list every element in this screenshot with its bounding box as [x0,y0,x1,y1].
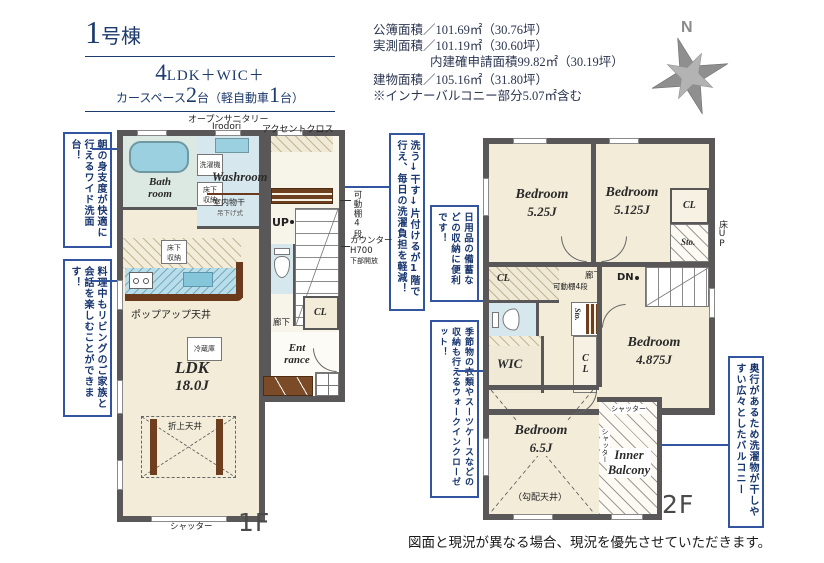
bedroom2-label: Bedroom 5.125J [595,184,669,218]
callout-laundry: 洗う↓干す↓片付けるが1階で行え、毎日の洗濯負担を軽減！ [389,133,425,311]
accent-wall-area [271,136,333,152]
area-line-kenkaku: 内建確申請面積99.82㎡（30.19坪） [373,54,624,70]
floor-up-label: 床UP [716,220,729,249]
wall-bath-bottom [123,207,197,210]
window [483,438,489,476]
porch [315,372,339,396]
toilet-room-1f [271,244,293,294]
burner-icon [133,278,139,284]
callout-balcony: 奥行があるため洗濯物が干しやすい広々としたバルコニー [728,356,764,528]
stairs-diagonal-2f [646,268,708,306]
storage-2f-topright: Sto. [670,224,709,262]
wall-toilet-stairs [293,244,295,326]
dn-label: DN [617,272,634,283]
window [117,460,123,490]
bathroom-label: Bathroom [131,176,189,200]
bedroom3-label: Bedroom 4.875J [609,334,699,368]
bedroom4-label: Bedroom 6.5J [495,422,587,456]
closet-1f: CL [303,296,339,330]
closet-2f-topright: CL [670,188,709,224]
bedroom1-label: Bedroom 5.25J [497,186,587,220]
stove [129,272,153,289]
wall-toilet-right [536,303,539,336]
vanity-counter [215,138,249,153]
area-figures: 公簿面積／101.69㎡（30.76坪） 実測面積／101.19㎡（30.60坪… [373,22,624,104]
window [513,514,553,520]
movable-shelf-band [271,188,333,204]
coffered-ceiling-box: 折上天井 [141,416,236,478]
movable-shelf-label-1f: 可動棚4段 [351,190,363,239]
wic-hatch [489,336,541,346]
window [137,130,167,136]
kitchen-sink [183,272,213,287]
area-line-jissoku: 実測面積／101.19㎡（30.60坪） [373,38,624,54]
movable-shelf-label-2f: 可動棚4段 [553,281,588,292]
ceiling-beam [150,419,157,475]
floor2-plan: Bedroom 5.25J Bedroom 5.125J CL Sto. CL … [483,138,715,520]
ceiling-beam [216,419,223,475]
toilet-tank-2f [492,312,499,328]
underfloor-storage-2: 床下収納 [161,240,187,264]
wall-washroom-bottom [197,226,265,229]
coffered-ceiling-label: 折上天井 [166,420,204,432]
spec-car-prefix: カースペース [116,91,186,105]
compass-north-label: N [681,19,693,36]
drying-pole [207,193,259,195]
counter-edge-side [236,262,243,298]
spec-car-count: 2 [186,82,197,107]
window [513,138,547,144]
dn-dot [635,276,639,280]
window [483,178,489,216]
popup-ceiling-label: ポップアップ天井 [131,306,211,321]
window [709,288,715,318]
floor1-plan: Bathroom 洗濯機 床下収納 Washroom 室内物干 吊下げ式 床下収… [117,130,345,522]
counter-edge [125,294,243,301]
storage-2f-mid: Sto. [571,302,599,336]
closet-2f-midleft: CL [489,267,559,300]
spec-car-mid: 台（軽自動車 [197,91,269,105]
area-line-kobo: 公簿面積／101.69㎡（30.76坪） [373,22,624,38]
shutter-label-1f: シャッター [170,520,213,532]
irodori-label: Irodori [212,122,241,132]
inner-balcony-label: Inner Balcony [607,448,651,478]
toilet-icon-2f [503,309,520,331]
up-dot [290,220,294,224]
counter-leader [341,246,350,247]
layout-spec-line2: カースペース2台（軽自動車1台） [85,82,335,108]
callout-kitchen: 料理中もリビングのご家族と会話を楽しむことができます！ [63,259,112,417]
closet-1f-label: CL [314,307,327,318]
floorplan-page: 1号棟 4LDK＋WIC＋ カースペース2台（軽自動車1台） 公簿面積／101.… [0,0,824,563]
entrance-step [263,376,313,396]
sloped-ceiling-label: （勾配天井） [511,490,569,503]
area-line-tatemono: 建物面積／105.16㎡（31.80坪） [373,72,624,88]
wall-notch-bottom [662,408,715,413]
floor2-label: 2F [662,490,694,519]
window [117,280,123,310]
washroom-label: Washroom [212,170,267,185]
toilet-icon [274,256,290,278]
spec-car-suffix: 台） [280,91,304,105]
window [611,514,643,520]
floor1-label: 1F [238,508,270,537]
hallway-label-1f: 廊下 [273,316,290,328]
area-line-note: ※インナーバルコニー部分5.07㎡含む [373,88,624,104]
window [609,138,639,144]
inner-balcony: シャッター シャッター Inner Balcony [599,402,657,514]
bathtub [129,141,189,173]
callout-wic: 季節物の衣類やスーツケースなどの収納も行えるウォークインクローゼット！ [430,320,479,498]
disclaimer-text: 図面と現況が異なる場合、現況を優先させていただきます。 [408,531,771,551]
compass-icon: N [648,14,732,118]
callout-storage: 日用品の備蓄などの収納に便利です！ [430,205,479,302]
wic-label: WIC [497,356,522,372]
window [117,380,123,414]
building-title: 1号棟 [85,14,141,51]
balcony-shutter-label-h: シャッター [611,404,646,414]
hanging-type-label: 吊下げ式 [217,207,243,217]
shelf-leader [340,200,351,201]
building-suffix: 号棟 [101,26,141,48]
entrance-label: Entrance [275,342,319,366]
counter-label: カウンター H700 下部開放 [350,236,393,266]
header-divider-top [85,56,335,57]
up-label: UP [272,216,289,229]
spec-kei-count: 1 [269,82,280,107]
stairs-2f [645,267,709,307]
toilet-tank [274,248,290,255]
toilet-room-2f [489,303,536,336]
building-number: 1 [85,14,101,50]
accent-cloth-label: アクセントクロス [262,122,334,135]
ldk-label: LDK 18.0J [147,358,237,396]
burner-icon [143,278,149,284]
